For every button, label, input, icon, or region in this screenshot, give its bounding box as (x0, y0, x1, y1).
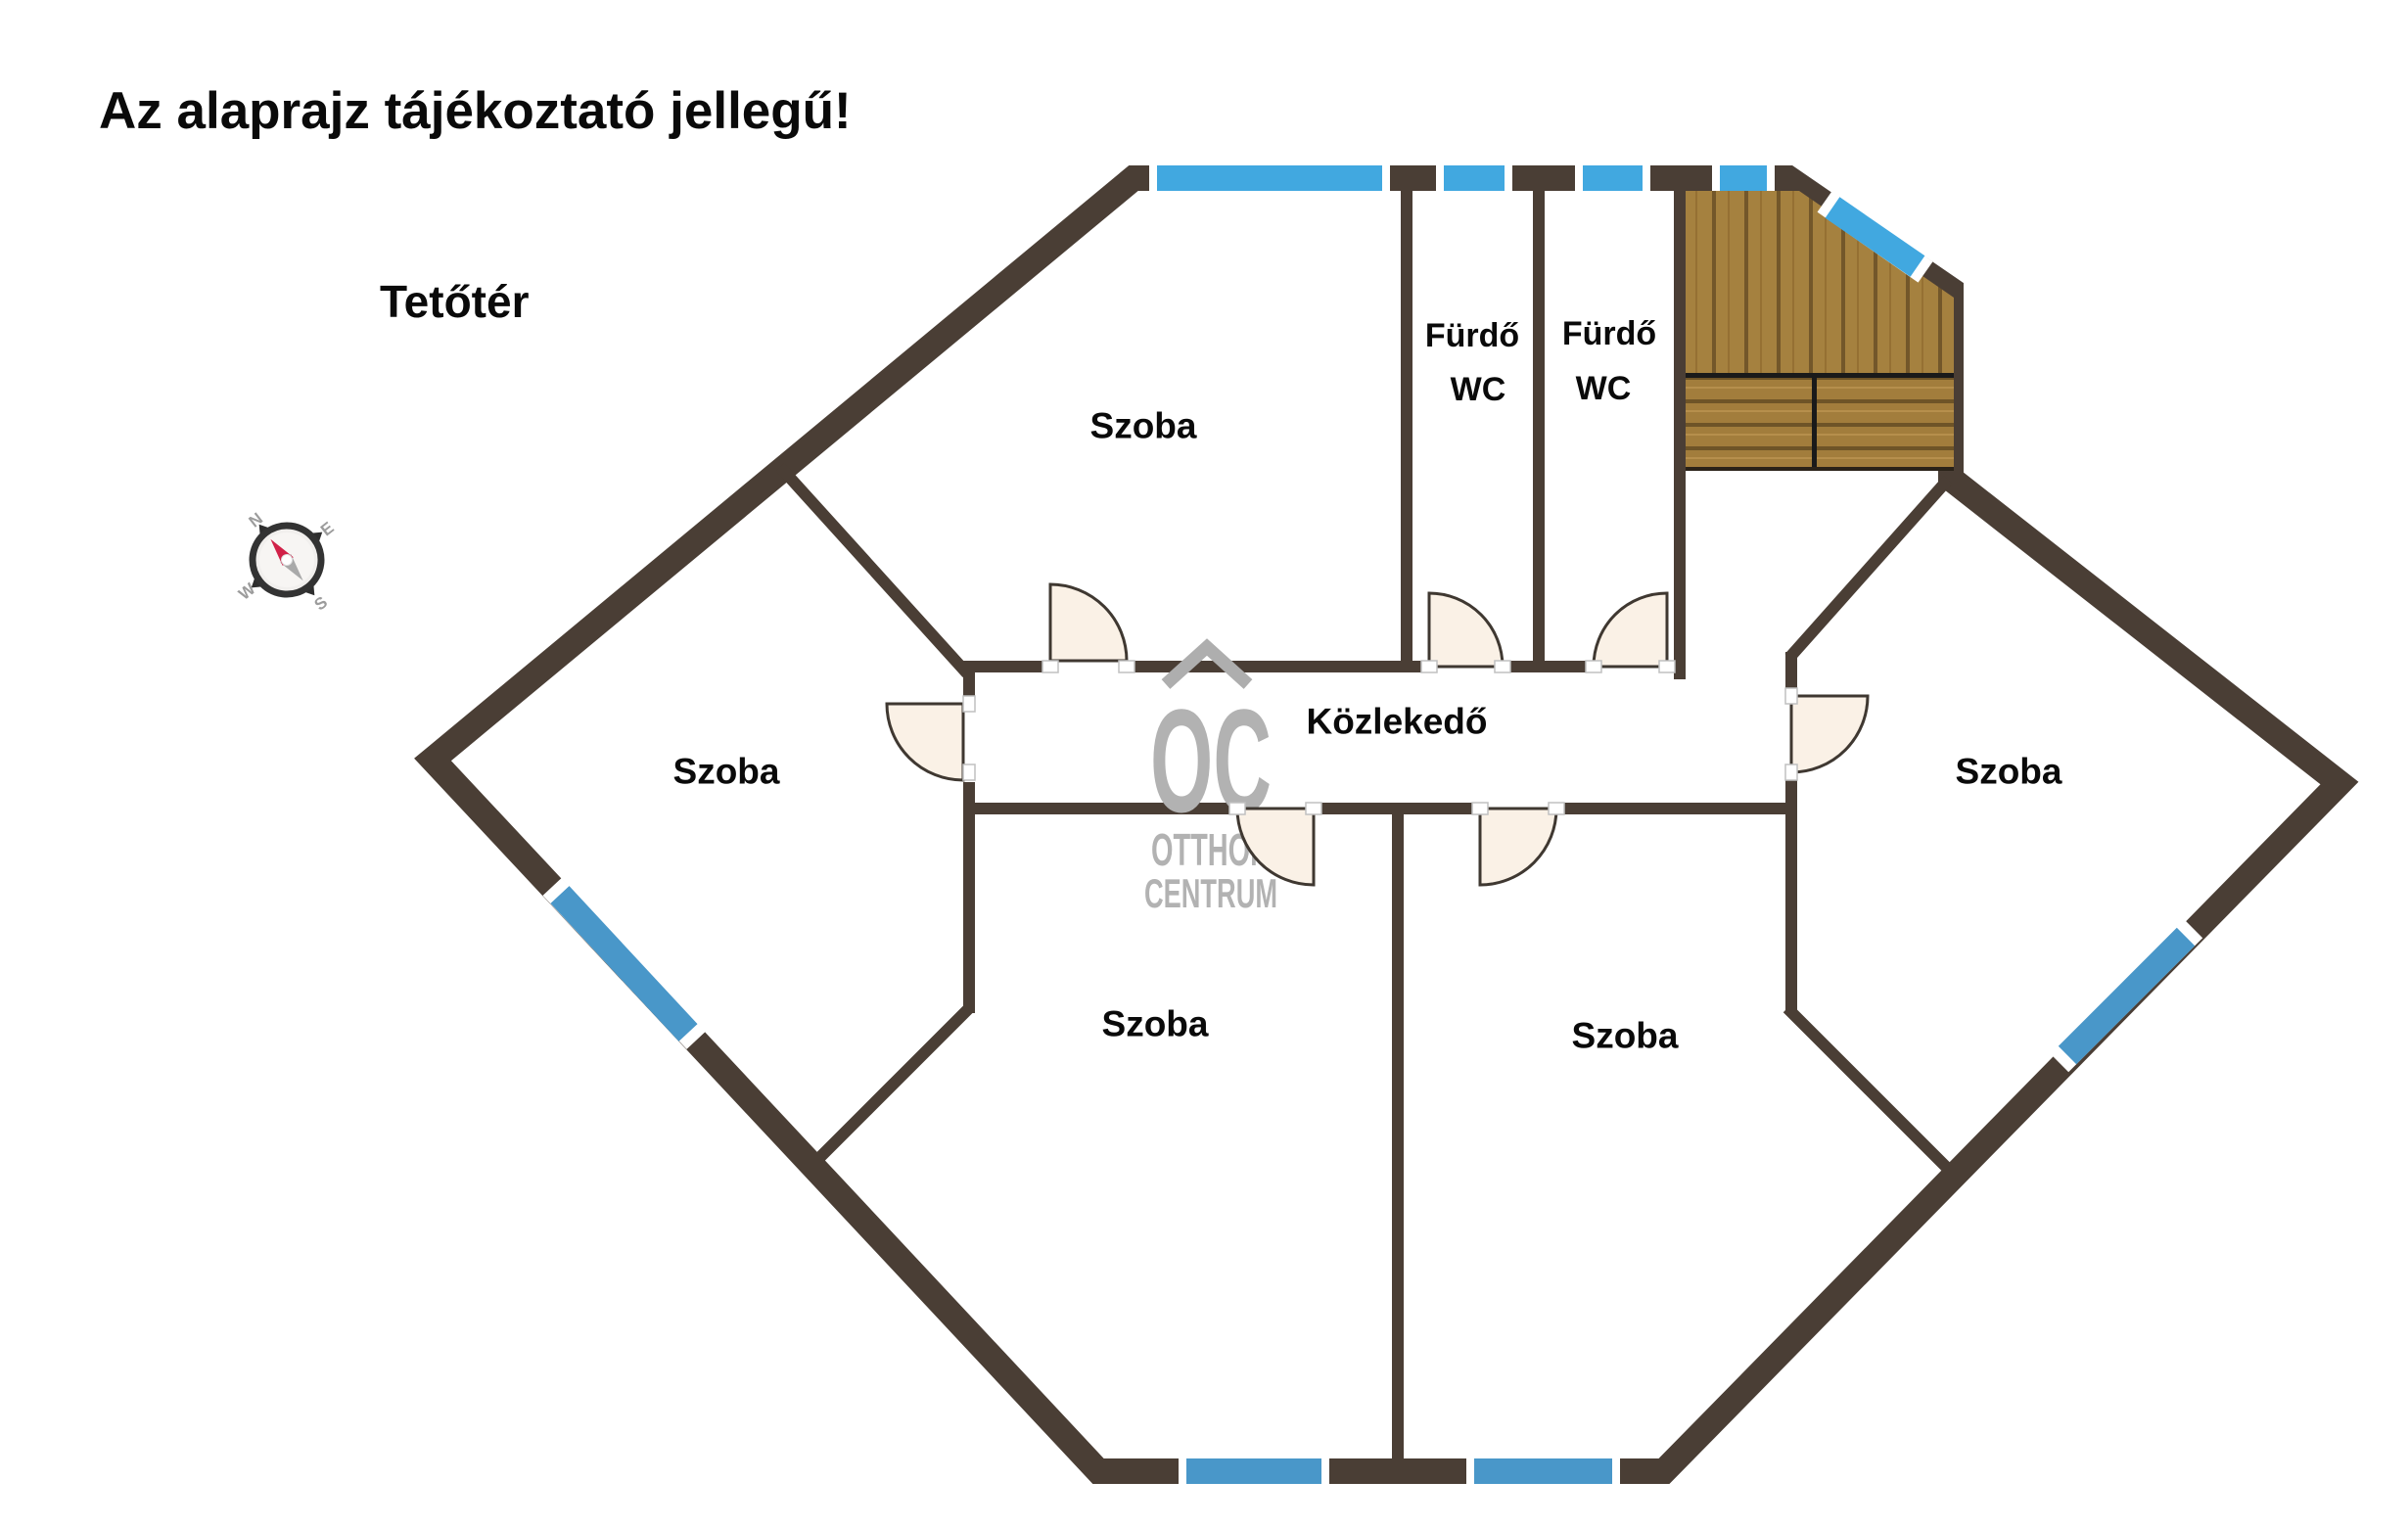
floor-level-label: Tetőtér (380, 277, 530, 327)
stairs-center-line (1812, 376, 1817, 470)
compass-s-label: S (310, 593, 331, 615)
room-label-bottom-right: Szoba (1572, 1018, 1679, 1054)
watermark-logo: OC OTTHON CENTRUM (1144, 647, 1277, 916)
staircase-wood-block (1686, 191, 1954, 471)
room-label-bath-right-line2: WC (1576, 372, 1632, 405)
room-label-left: Szoba (673, 754, 780, 790)
compass-icon: N E S W (204, 478, 371, 647)
room-label-bath-left-line1: Fürdő (1425, 319, 1519, 352)
watermark-line2: CENTRUM (1144, 870, 1277, 916)
outer-wall (433, 178, 2339, 1471)
disclaimer-title: Az alaprajz tájékoztató jellegű! (99, 83, 852, 140)
stairs-upper-planks (1686, 191, 1954, 376)
room-label-bath-right-line1: Fürdő (1562, 317, 1656, 350)
room-label-right: Szoba (1956, 754, 2062, 790)
stairs-divider-line (1686, 373, 1954, 378)
room-label-corridor: Közlekedő (1306, 704, 1487, 740)
stairs-bottom-edge (1686, 467, 1954, 471)
room-label-top: Szoba (1090, 408, 1197, 444)
room-label-bath-left-line2: WC (1451, 373, 1506, 406)
room-label-bottom-left: Szoba (1102, 1006, 1209, 1042)
stairs-lower-steps (1686, 376, 1954, 470)
floor-plan-page: OC OTTHON CENTRUM (0, 0, 2408, 1527)
